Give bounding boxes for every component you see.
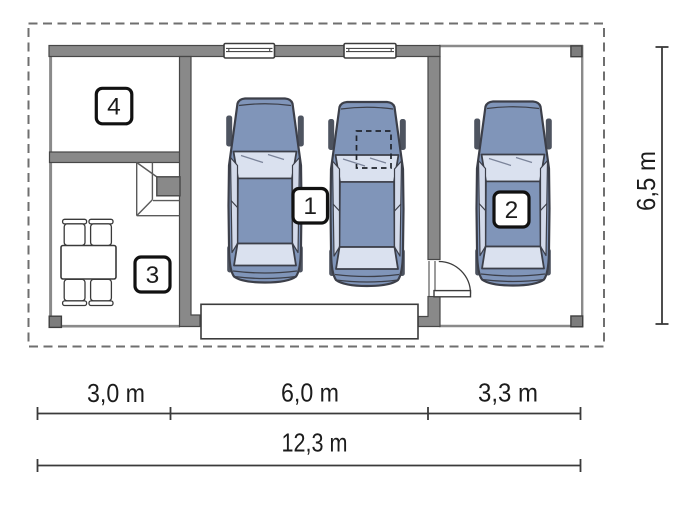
svg-text:4: 4 [107,94,121,121]
svg-text:12,3 m: 12,3 m [282,428,348,458]
svg-text:6,5 m: 6,5 m [631,151,661,211]
svg-text:3,0 m: 3,0 m [87,378,145,408]
svg-text:2: 2 [505,197,519,224]
svg-text:1: 1 [303,193,317,220]
svg-text:6,0 m: 6,0 m [281,378,339,408]
svg-text:3: 3 [146,262,160,289]
svg-text:3,3 m: 3,3 m [478,378,538,408]
